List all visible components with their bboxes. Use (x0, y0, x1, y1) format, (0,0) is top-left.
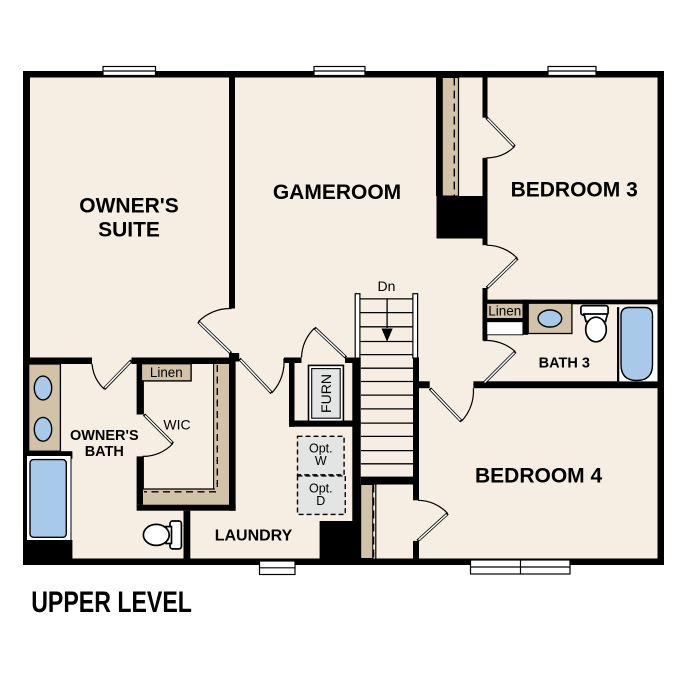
svg-text:OWNER'S: OWNER'S (70, 428, 139, 444)
svg-text:Dn: Dn (378, 278, 396, 294)
svg-text:Linen: Linen (150, 365, 183, 380)
svg-text:Linen: Linen (488, 304, 521, 319)
svg-text:D: D (316, 494, 325, 508)
svg-text:LAUNDRY: LAUNDRY (215, 528, 293, 545)
svg-text:UPPER LEVEL: UPPER LEVEL (31, 585, 192, 618)
svg-text:SUITE: SUITE (98, 218, 160, 241)
svg-text:BEDROOM 3: BEDROOM 3 (511, 178, 638, 201)
svg-text:FURN: FURN (318, 374, 334, 413)
svg-text:OWNER'S: OWNER'S (79, 194, 179, 217)
svg-text:W: W (315, 454, 327, 468)
svg-text:BATH: BATH (85, 444, 124, 460)
svg-text:BEDROOM 4: BEDROOM 4 (475, 464, 603, 487)
svg-text:WIC: WIC (163, 417, 190, 433)
svg-text:GAMEROOM: GAMEROOM (273, 181, 401, 204)
svg-text:BATH 3: BATH 3 (539, 355, 590, 371)
